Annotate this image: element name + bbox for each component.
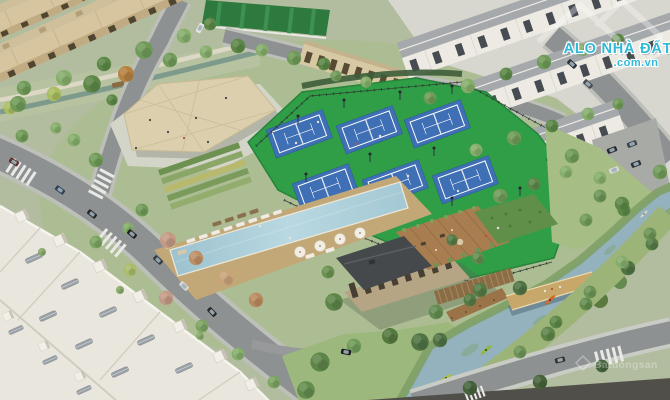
watermark-domain: .com.vn <box>613 57 658 69</box>
scene-svg: ALO NHÀ ĐẤT ALO NHÀ ĐẤT .com.vn Batdongs… <box>0 0 670 400</box>
watermark-batdongsan-text: Batdongsan <box>594 359 658 371</box>
watermark-title: ALO NHÀ ĐẤT <box>564 40 670 57</box>
aerial-render-image: ALO NHÀ ĐẤT ALO NHÀ ĐẤT .com.vn Batdongs… <box>0 0 670 400</box>
